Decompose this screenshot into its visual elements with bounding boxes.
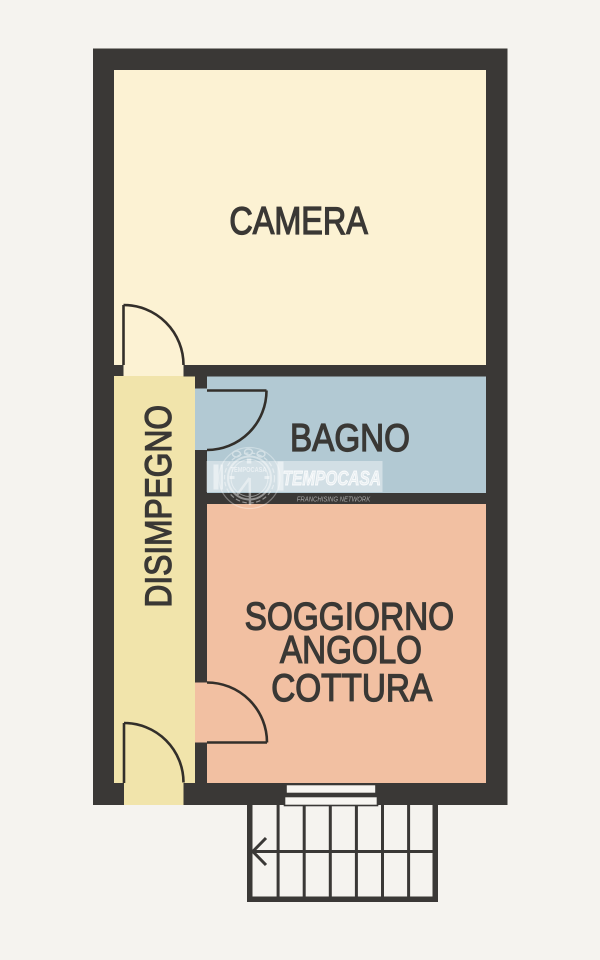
svg-text:ANGOLO: ANGOLO [280, 629, 422, 672]
svg-text:TEMPOCASA: TEMPOCASA [231, 465, 267, 474]
svg-text:COTTURA: COTTURA [271, 667, 432, 710]
svg-text:FRANCHISING NETWORK: FRANCHISING NETWORK [297, 495, 371, 504]
svg-text:BAGNO: BAGNO [290, 417, 410, 460]
svg-text:TEMPOCASA: TEMPOCASA [283, 467, 381, 490]
svg-text:CAMERA: CAMERA [229, 200, 368, 243]
svg-text:DISIMPEGNO: DISIMPEGNO [137, 405, 179, 608]
